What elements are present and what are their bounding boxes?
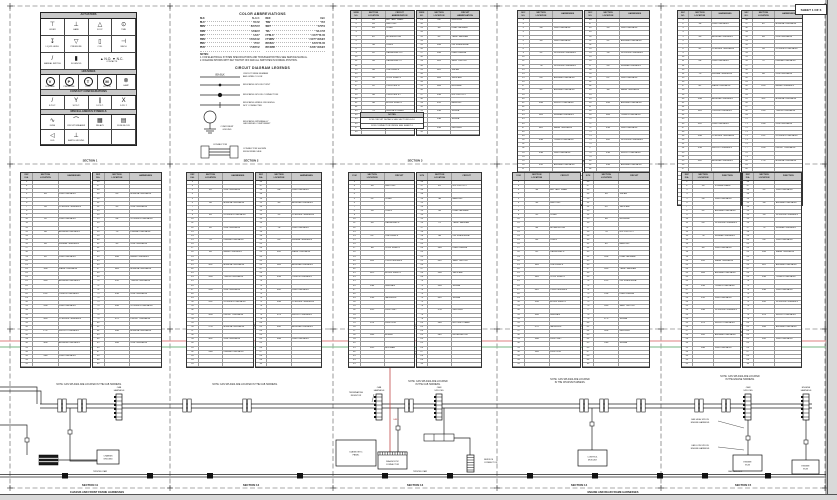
table-cell (714, 280, 740, 283)
table-cell: TURN SIG RT (386, 94, 414, 97)
table-cell (385, 330, 414, 333)
table-cell: 64 (742, 94, 753, 97)
table-cell (105, 363, 130, 366)
table-cell (594, 309, 619, 312)
table-cell (428, 48, 451, 51)
table-cell: 75 (585, 139, 597, 142)
table-cell: 54 (256, 214, 268, 217)
table-cell: 32 (417, 31, 428, 34)
color-abbr: DK BLU (266, 43, 275, 46)
table-cell: 26 (349, 285, 361, 288)
table-cell: 16A (594, 305, 619, 308)
color-abbr: BLU (200, 22, 205, 25)
table-cell (525, 198, 550, 201)
table-cell (59, 202, 90, 205)
table-cell (267, 260, 291, 263)
table-cell: SPARE (452, 297, 481, 300)
liquid-level-icon: ↧ (50, 39, 55, 46)
table-cell (385, 227, 414, 230)
table-cell (428, 23, 451, 26)
table-cell (689, 77, 712, 80)
table-cell (553, 123, 582, 126)
table-cell (223, 342, 252, 345)
table-cell (775, 285, 801, 288)
table-cell: 36 (187, 326, 199, 329)
table-cell: 18 (187, 251, 199, 254)
table-cell: 7 (678, 44, 689, 47)
table-cell: 3C (361, 198, 385, 201)
table-group: SYMSECTION LOCATIONCIRCUIT46472CA/C CLUT… (416, 172, 483, 368)
table-cell (223, 181, 252, 184)
table-cell: 3C (362, 52, 385, 55)
table-cell (428, 264, 452, 267)
table-cell: 27 (187, 289, 199, 292)
table-cell (223, 280, 252, 283)
table-cell: 69 (93, 276, 105, 279)
table-cell: 9C (105, 243, 130, 246)
table-cell: 15 (21, 239, 33, 242)
table-cell: 81 (93, 326, 105, 329)
table-cell: 18 (351, 89, 362, 92)
table-cell (199, 280, 223, 283)
table-cell (754, 222, 776, 225)
table-cell: CAB HARNESS (620, 77, 649, 80)
table-cell: 56 (93, 222, 105, 225)
table-cell (525, 309, 550, 312)
table-cell: 10A (754, 251, 776, 254)
section-label: SECTION 1 (83, 159, 98, 163)
table-cell: 8C (361, 235, 385, 238)
table-cell: FRONT HARNESS (775, 147, 802, 150)
table-cell (59, 210, 90, 213)
table-cell: 69 (417, 276, 429, 279)
table-cell: 25 (187, 280, 199, 283)
table-cell: CAB HARNESS (714, 198, 740, 201)
table-cell: CHASSIS HARNESS (775, 135, 802, 138)
legend-symbol-label: HAND (73, 29, 79, 31)
table-cell: 25 (678, 118, 689, 121)
table-cell: 5 (187, 198, 199, 201)
table-cell: 66 (583, 264, 595, 267)
table-cell: 47 (417, 185, 429, 188)
table-cell (594, 338, 619, 341)
table-cell (775, 65, 802, 68)
table-cell: 43 (21, 355, 33, 358)
table-cell: 54 (742, 52, 753, 55)
table-cell: 61 (256, 243, 268, 246)
table-cell (714, 193, 740, 196)
table-cell (223, 268, 252, 271)
table-cell: 28 (187, 293, 199, 296)
table-cell (754, 181, 776, 184)
table-header-cell: REF DIA. (743, 173, 754, 180)
table-cell (267, 318, 291, 321)
legend-symbol-label: S.P.S.T. (49, 105, 56, 107)
table-cell (223, 210, 252, 213)
table-cell: 7 (518, 44, 530, 47)
table-cell: 30 (682, 301, 693, 304)
table-cell: 10C (199, 264, 223, 267)
circuit-legend-note: INDICATES INTERNALLYGROUNDED COMPONENT (243, 121, 271, 126)
table-cell: 2A (361, 185, 385, 188)
table-cell: 52 (583, 206, 595, 209)
table-cell: 8A (530, 77, 554, 80)
table-cell: 9C (530, 89, 554, 92)
table-cell: 3 (21, 189, 33, 192)
table-cell (386, 89, 414, 92)
splice-connector (25, 438, 29, 442)
table-cell (292, 218, 321, 221)
table-cell: 32 (682, 309, 693, 312)
table-cell: 88 (256, 355, 268, 358)
table-cell (33, 189, 58, 192)
table-cell (267, 256, 291, 259)
foot-icon: △ (98, 22, 103, 29)
table-cell (361, 206, 385, 209)
pin-square (743, 416, 745, 418)
table-cell: 12A (753, 110, 776, 113)
table-cell (594, 227, 619, 230)
bottom-harness-connector (527, 473, 533, 479)
table-cell: 15C (753, 135, 776, 138)
table-cell (452, 305, 481, 308)
table-cell (619, 276, 649, 279)
table-cell: 71 (585, 123, 597, 126)
table-cell (530, 135, 554, 138)
color-abbr: TAN (266, 22, 271, 25)
table-cell (452, 326, 481, 329)
color-abbreviations-block: COLOR ABBREVIATIONS BLKBLACKBLUBLUEBRNBR… (200, 12, 325, 164)
table-cell: 32 (513, 309, 525, 312)
table-cell: TRANS HARNESS (775, 110, 802, 113)
table-cell (530, 73, 554, 76)
table-row: 45 (682, 363, 740, 367)
table-cell: 14C (525, 289, 550, 292)
table-cell (428, 326, 452, 329)
table-header-cell: SECTION LOCATION (689, 11, 712, 18)
table-cell (525, 293, 550, 296)
table-cell: 48 (256, 189, 268, 192)
table-cell: 42 (187, 351, 199, 354)
table-cell (712, 27, 739, 30)
table-cell (452, 268, 481, 271)
table-cell (59, 222, 90, 225)
table-cell: 12A (105, 268, 130, 271)
table-cell (553, 156, 582, 159)
table-cell (775, 44, 802, 47)
table-cell (130, 355, 161, 358)
table-cell: 48 (585, 27, 597, 30)
table-cell: 4B (754, 202, 776, 205)
table-cell (362, 81, 385, 84)
table-header-cell: SECTION LOCATION (753, 11, 776, 18)
table-cell (553, 106, 582, 109)
circuit-legend-item: INDICATES SPLICE CONNECTION (200, 91, 325, 99)
table-cell: 85 (93, 342, 105, 345)
table-cell: 13 (678, 69, 689, 72)
table-cell: 70 (256, 280, 268, 283)
table-cell: 26 (513, 285, 525, 288)
table-header-row: SYMSECTION LOCATIONCIRCUIT (583, 173, 650, 181)
table-cell: REAR HARNESS (775, 251, 801, 254)
table-cell (714, 227, 740, 230)
table-cell (33, 322, 58, 325)
table-cell: 19C (428, 334, 452, 337)
table-cell (130, 198, 161, 201)
table-cell (452, 193, 481, 196)
table-cell: 16 (513, 243, 525, 246)
table-cell (292, 359, 321, 362)
table-cell: 6A (428, 210, 452, 213)
table-cell: 5C (33, 218, 58, 221)
table-cell: 48 (583, 189, 595, 192)
table-cell: ENGINE HARNESS (775, 326, 801, 329)
table-cell (550, 297, 580, 300)
pin-square (114, 408, 116, 410)
table-cell (712, 31, 739, 34)
color-name: PURPLE (250, 47, 259, 50)
table-cell (775, 231, 801, 234)
table-cell (693, 318, 715, 321)
table-header-row: SEC NO.SECTION LOCATIONHARNESSES (742, 11, 803, 19)
legend-symbol-label: D.P.S.T. (96, 105, 103, 107)
table-cell: 2A (594, 193, 619, 196)
table-cell: 38 (21, 334, 33, 337)
table-cell: START (385, 198, 414, 201)
table-cell: 46 (743, 181, 754, 184)
table-cell: 86 (743, 347, 754, 350)
circuit-legend-note: CIRCUIT WIRE NUMBERAND WIRE COLOR (243, 73, 268, 78)
table-cell: 15 (187, 239, 199, 242)
table-cell: 7 (21, 206, 33, 209)
table-cell: 62 (417, 247, 429, 250)
table-cell (361, 301, 385, 304)
notes-title: NOTES: (200, 54, 209, 56)
table-cell: 2A (362, 27, 385, 30)
table-cell (428, 338, 452, 341)
table-header-cell: REF DIA. (21, 173, 33, 180)
table-cell (267, 268, 291, 271)
table-cell (428, 131, 451, 134)
table-cell (530, 44, 554, 47)
table-cell (714, 214, 740, 217)
table-cell: 8A (267, 239, 291, 242)
table-header-row: SEC NO.SECTION LOCATIONHARNESSES (678, 11, 739, 19)
table-cell (292, 280, 321, 283)
table-cell: 58 (256, 231, 268, 234)
table-cell: 59 (417, 235, 429, 238)
table-cell: TRANS HARNESS (712, 110, 739, 113)
table-cell: 59 (256, 235, 268, 238)
table-cell: 45 (349, 363, 361, 366)
table-cell: 13A (199, 289, 223, 292)
table-cell: 5 (21, 198, 33, 201)
splice-connector (590, 422, 594, 426)
table-cell: 45 (417, 85, 428, 88)
legend-symbol-cell: ⊤LEVER (41, 19, 65, 36)
table-cell: ENGINE HARNESS (775, 98, 802, 101)
table-cell: CAB HARNESS (775, 36, 802, 39)
table-cell (712, 52, 739, 55)
table-cell (130, 285, 161, 288)
table-cell: 13 (513, 231, 525, 234)
table-cell (362, 65, 385, 68)
table-header-cell: REF DIA. (93, 173, 105, 180)
legend-section-grid: ⊤LEVER⊥HAND△FOOT⊙TIME↧LIQUID LEVEL▽PRESS… (41, 19, 136, 70)
table-cell (385, 293, 414, 296)
table-cell: CAB HARNESS (553, 40, 582, 43)
table-cell (59, 235, 90, 238)
table-cell (428, 280, 452, 283)
table-cell (451, 114, 479, 117)
table-cell: 6B (594, 218, 619, 221)
table-cell (594, 235, 619, 238)
table-cell: 19 (678, 94, 689, 97)
table-cell (553, 44, 582, 47)
table-row: 56 (417, 131, 480, 135)
table-cell (59, 289, 90, 292)
ground-block (39, 455, 58, 465)
table-cell (451, 123, 479, 126)
table-cell (550, 330, 580, 333)
table-cell: 79 (585, 156, 597, 159)
table-cell: GAUGES (550, 314, 580, 317)
connector-cell-row (424, 434, 454, 441)
table-cell: 48 (417, 98, 428, 101)
pin-square (374, 412, 376, 414)
table-cell: CAB HARNESS (712, 23, 739, 26)
table-cell (712, 131, 739, 134)
table-cell: 21 (678, 102, 689, 105)
time-icon: ⊙ (121, 22, 126, 29)
table-cell: 81 (256, 326, 268, 329)
table-cell (620, 147, 649, 150)
table-cell: 1 (678, 19, 689, 22)
harness-branch (0, 425, 27, 455)
table-cell: 47 (742, 23, 753, 26)
table-cell: 32 (518, 147, 530, 150)
table-cell: ENGINE HARNESS (292, 264, 321, 267)
table-cell: 43 (349, 355, 361, 358)
table-cell: 57 (583, 227, 595, 230)
table-header-cell: SECTION LOCATION (105, 173, 130, 180)
table-cell: WASHER (451, 77, 479, 80)
table-cell (105, 355, 130, 358)
table-header-cell: SECTION LOCATION (525, 173, 550, 180)
table-cell (105, 334, 130, 337)
table-cell: BATTERY FEED (386, 19, 414, 22)
table-cell (619, 239, 649, 242)
table-cell: TEMP SENDER (619, 268, 649, 271)
table-cell: 6B (525, 227, 550, 230)
table-cell: ENGINE HARNESS (620, 40, 649, 43)
table-cell: 83 (583, 334, 595, 337)
table-cell: 15 (682, 239, 693, 242)
table-cell: 4B (753, 36, 776, 39)
table-cell (775, 256, 801, 259)
table-cell (525, 260, 550, 263)
table-cell: 36 (513, 326, 525, 329)
aux-box-cell: FOR CONNECTOR VIEWS SEE SHEET 6 (361, 124, 423, 129)
table-cell (451, 73, 479, 76)
table-cell: 16A (33, 318, 58, 321)
table-cell (59, 239, 90, 242)
table-cell: 56 (585, 60, 597, 63)
table-cell (105, 235, 130, 238)
table-cell: 55 (256, 218, 268, 221)
table-cell: 6A (361, 222, 385, 225)
table-cell (525, 185, 550, 188)
color-name: GRAY (253, 35, 259, 38)
table-cell (33, 251, 58, 254)
table-cell (361, 276, 385, 279)
table-cell (525, 297, 550, 300)
table-cell: 77 (742, 147, 753, 150)
bottom-harness-connector (147, 473, 153, 479)
table-cell: 21 (682, 264, 693, 267)
table-cell: 30 (349, 301, 361, 304)
table-cell (775, 118, 802, 121)
table-cell: CAB HARNESS (292, 338, 321, 341)
table-cell: SPARE (619, 318, 649, 321)
table-cell: 17B (754, 314, 776, 317)
table-cell: 56 (742, 60, 753, 63)
table-cell: 62 (742, 85, 753, 88)
table-group: REF DIA.SECTION LOCATIONHARNESSES12342BC… (20, 172, 91, 368)
table-header-row: SYMSECTION LOCATIONCIRCUIT (513, 173, 580, 181)
table-cell: 75 (256, 301, 268, 304)
table-cell (775, 272, 801, 275)
table-cell: TURN SIGNALS (385, 260, 414, 263)
table-cell: 62 (585, 85, 597, 88)
table-cell: 14 (351, 73, 362, 76)
table-cell: 22 (678, 106, 689, 109)
table-cell (428, 227, 452, 230)
table-cell (620, 23, 649, 26)
table-cell (712, 40, 739, 43)
table-cell (451, 65, 479, 68)
table-cell: 31 (187, 305, 199, 308)
table-cell (385, 342, 414, 345)
table-cell: 55 (93, 218, 105, 221)
table-cell (386, 131, 414, 134)
table-cell: 4 (518, 31, 530, 34)
drawing-sheet: SECTION 1SECTION 6SECTION 11SECTION 2SEC… (0, 0, 837, 500)
table-header-cell: SECTION LOCATION (361, 173, 385, 180)
table-cell: 60 (93, 239, 105, 242)
table-cell: 16 (21, 243, 33, 246)
table-row: 90 (256, 363, 322, 367)
table-cell: 15B (33, 305, 58, 308)
table-cell (530, 118, 554, 121)
table-cell (550, 272, 580, 275)
table-cell: 38 (187, 334, 199, 337)
table-cell (550, 260, 580, 263)
table-cell (619, 338, 649, 341)
table-cell: 8B (754, 239, 776, 242)
table-cell (597, 123, 621, 126)
section-label: SECTION 11 (82, 483, 99, 487)
table-cell: 69 (585, 114, 597, 117)
table-cell: 71 (743, 285, 754, 288)
table-cell (553, 168, 582, 171)
table-header-row: REF DIA.SECTION LOCATIONFUNCTION (682, 173, 740, 181)
table-cell (292, 185, 321, 188)
table-cell: 16A (597, 164, 621, 167)
table-cell (775, 322, 801, 325)
housing-symbol-icon: T (84, 77, 93, 86)
table-cell (530, 36, 554, 39)
